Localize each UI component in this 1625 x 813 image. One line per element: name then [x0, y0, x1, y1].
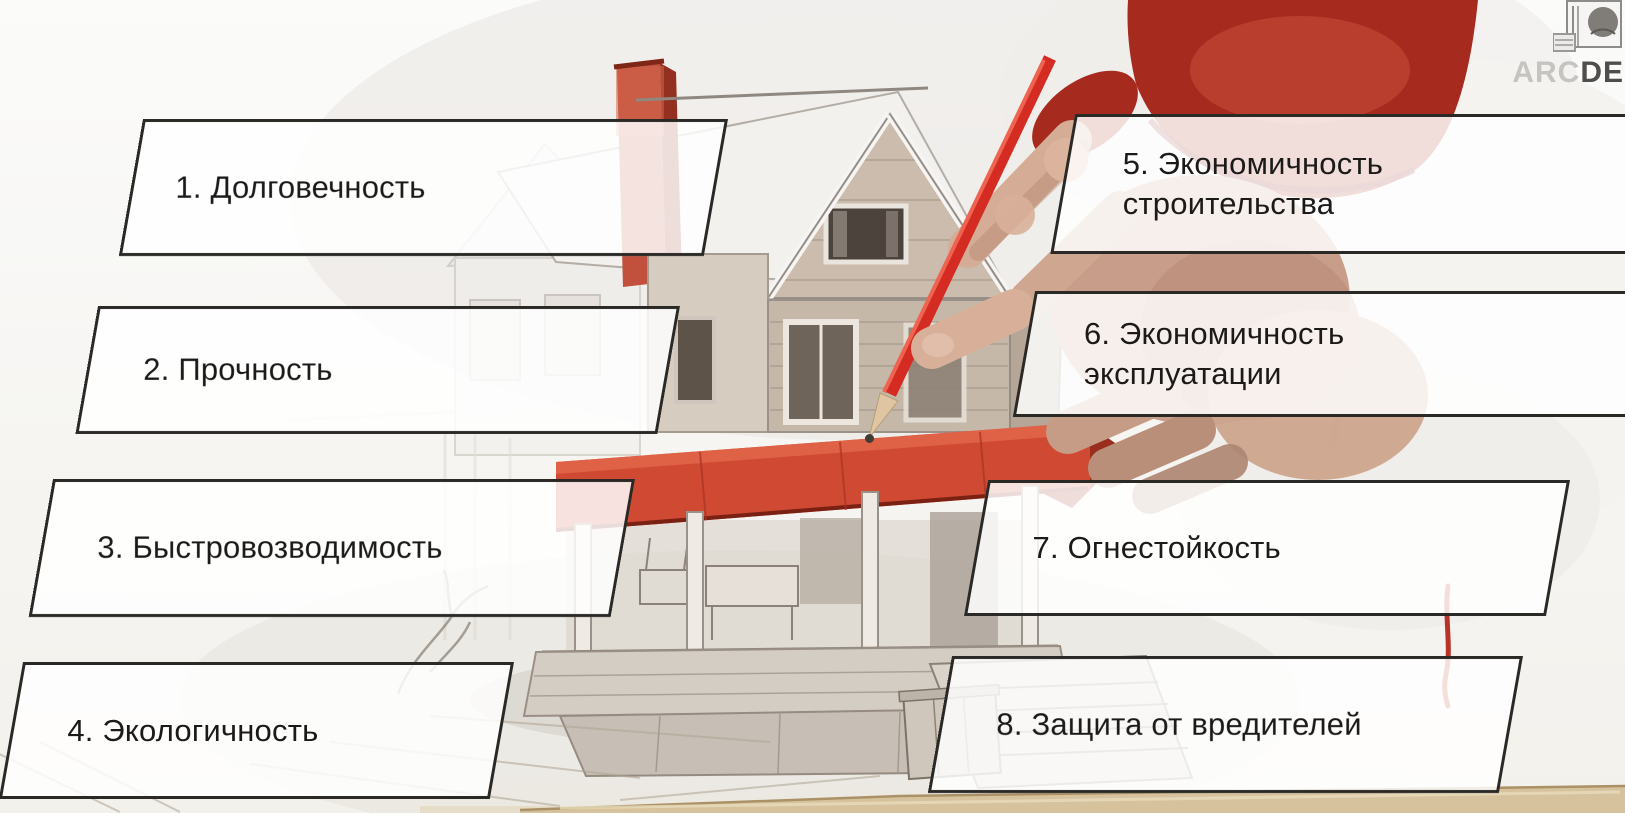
label-box-operation-economy: 6. Экономичность эксплуатации	[1013, 291, 1625, 417]
label-box-strength: 2. Прочность	[75, 306, 680, 434]
label-text-strength: 2. Прочность	[143, 350, 332, 390]
logo-mark-icon	[1553, 0, 1623, 58]
label-text-durability: 1. Долговечность	[175, 168, 425, 208]
label-box-pest-protection: 8. Защита от вредителей	[928, 656, 1523, 793]
label-text-quick-assembly: 3. Быстровозводимость	[97, 528, 442, 568]
label-text-construction-economy: 5. Экономичность строительства	[1123, 144, 1383, 224]
label-box-eco-friendliness: 4. Экологичность	[0, 662, 514, 799]
label-box-fire-resistance: 7. Огнестойкость	[964, 480, 1570, 616]
label-box-construction-economy: 5. Экономичность строительства	[1050, 114, 1625, 254]
arcde-logo: ARCDE	[1495, 0, 1625, 95]
logo-text: ARCDE	[1512, 56, 1624, 90]
label-text-fire-resistance: 7. Огнестойкость	[1033, 528, 1281, 568]
label-text-eco-friendliness: 4. Экологичность	[67, 711, 318, 751]
logo-text-arc: ARC	[1512, 56, 1580, 89]
label-box-durability: 1. Долговечность	[119, 119, 728, 256]
logo-text-de: DE	[1580, 56, 1624, 89]
attic-window	[826, 206, 906, 262]
infographic-slide: ARCDE 1. Долговечность 2. Прочность 3. Б…	[0, 0, 1625, 813]
label-box-quick-assembly: 3. Быстровозводимость	[29, 479, 635, 617]
label-text-pest-protection: 8. Защита от вредителей	[996, 705, 1361, 745]
label-text-operation-economy: 6. Экономичность эксплуатации	[1084, 314, 1344, 394]
